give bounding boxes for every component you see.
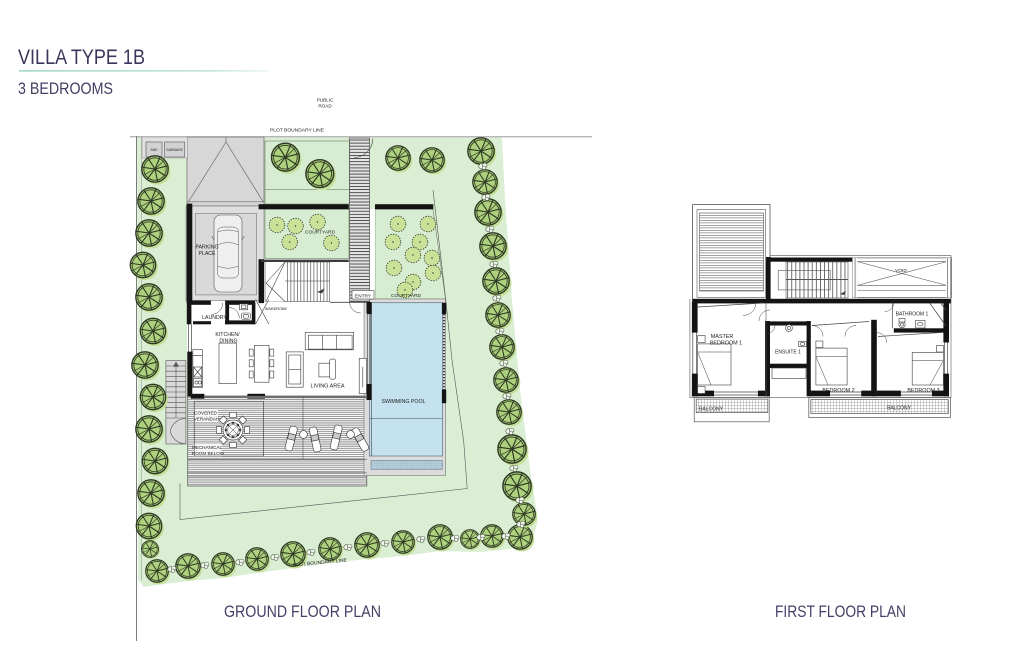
- svg-text:BEDROOM 2: BEDROOM 2: [822, 388, 854, 394]
- svg-text:ROOM BELOW: ROOM BELOW: [192, 451, 225, 456]
- svg-text:MECHANICAL: MECHANICAL: [192, 445, 223, 450]
- svg-text:PLOT BOUNDARY LINE: PLOT BOUNDARY LINE: [270, 128, 324, 134]
- svg-text:SWIMMING POOL: SWIMMING POOL: [382, 399, 426, 405]
- svg-text:PLACE: PLACE: [198, 251, 216, 257]
- svg-text:WARDROBE: WARDROBE: [265, 307, 288, 311]
- svg-text:VILLA TYPE 1B: VILLA TYPE 1B: [18, 45, 145, 69]
- svg-text:BEDROOM 1: BEDROOM 1: [710, 341, 742, 347]
- svg-text:BALCONY: BALCONY: [699, 407, 724, 413]
- svg-text:LIVING AREA: LIVING AREA: [311, 384, 346, 390]
- svg-text:BEDROOM 3: BEDROOM 3: [907, 388, 939, 394]
- svg-text:KITCHEN/: KITCHEN/: [215, 332, 240, 338]
- svg-text:VOID: VOID: [895, 268, 907, 274]
- svg-text:DINING: DINING: [219, 339, 237, 345]
- svg-text:COVERED: COVERED: [194, 411, 217, 416]
- svg-text:ANK: ANK: [151, 148, 159, 152]
- svg-text:BALCONY: BALCONY: [887, 406, 912, 412]
- svg-text:ENSUITE 1: ENSUITE 1: [775, 350, 801, 356]
- svg-text:VERANDAH: VERANDAH: [194, 417, 220, 422]
- svg-text:COURTYARD: COURTYARD: [305, 230, 336, 236]
- svg-text:3 BEDROOMS: 3 BEDROOMS: [18, 79, 113, 98]
- svg-text:GROUND FLOOR PLAN: GROUND FLOOR PLAN: [224, 603, 381, 621]
- svg-text:PARKING: PARKING: [196, 245, 219, 251]
- svg-text:PUBLIC: PUBLIC: [317, 98, 334, 103]
- svg-text:GARBAGE: GARBAGE: [166, 148, 184, 152]
- svg-text:COURTYARD: COURTYARD: [391, 293, 422, 299]
- svg-text:ENTRY: ENTRY: [355, 294, 372, 300]
- svg-text:LAUNDRY: LAUNDRY: [202, 315, 227, 321]
- svg-text:BATHROOM 1: BATHROOM 1: [896, 312, 929, 318]
- svg-text:ROAD: ROAD: [318, 104, 332, 109]
- svg-text:FIRST FLOOR PLAN: FIRST FLOOR PLAN: [775, 603, 906, 621]
- svg-text:MASTER: MASTER: [711, 334, 734, 340]
